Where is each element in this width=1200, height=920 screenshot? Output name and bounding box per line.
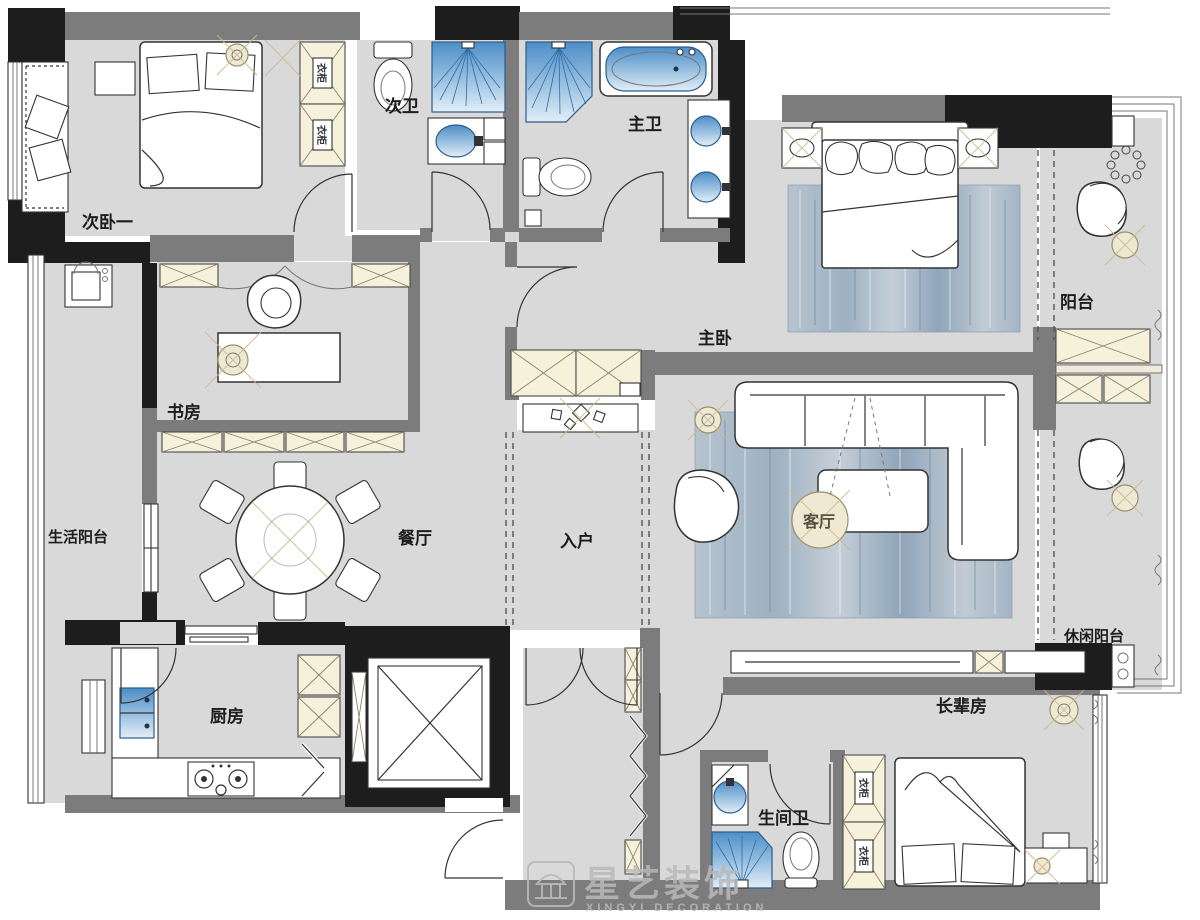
nightstand-master-left — [782, 128, 822, 168]
nightstand-master-right — [958, 128, 998, 168]
nightstand-bedroom2 — [95, 62, 135, 95]
study-chair — [248, 275, 301, 328]
bathtub — [600, 42, 712, 96]
bed-master — [812, 122, 968, 268]
wardrobe-label-4: 衣柜 — [857, 846, 870, 866]
accent-chair — [674, 470, 738, 542]
wardrobe-elder-room — [843, 755, 885, 889]
service-balcony-window — [28, 255, 44, 803]
room-label-leisure-balcony: 休闲阳台 — [1063, 627, 1124, 645]
room-label-master-bedroom: 主卧 — [698, 328, 732, 348]
dining-slider-window — [144, 504, 158, 592]
room-label-entry: 入户 — [560, 531, 594, 551]
room-label-balcony: 阳台 — [1060, 292, 1094, 312]
wardrobe-label-3: 衣柜 — [857, 778, 870, 798]
room-label-bath2: 次卫 — [385, 96, 419, 116]
floorplan-canvas: 次卧一 次卫 主卫 主卧 阳台 书房 生活阳台 餐厅 入户 客厅 休闲阳台 厨房… — [0, 0, 1200, 920]
room-label-elder-bath: 生间卫 — [758, 808, 809, 828]
leisure-chair — [1079, 439, 1124, 489]
toilet-elder-bath — [783, 832, 819, 888]
ceiling-light-elder — [1044, 690, 1084, 730]
tv-cabinet — [731, 651, 1085, 673]
leisure-utility-cabinet — [1112, 645, 1134, 687]
wardrobe-label-2: 衣柜 — [315, 125, 328, 145]
balcony-divider-cabinets — [1056, 329, 1162, 403]
vanity-sink-bath2 — [428, 118, 505, 164]
watermark-brand: 星艺装饰 — [584, 863, 744, 904]
balcony-chair — [1077, 182, 1126, 236]
elevator — [345, 626, 510, 807]
room-label-living: 客厅 — [803, 512, 835, 531]
shower-bath2 — [432, 42, 505, 112]
room-label-study: 书房 — [167, 402, 201, 422]
room-label-bedroom2: 次卧一 — [82, 212, 133, 232]
balcony-ac-unit — [1112, 116, 1134, 146]
toilet-master-bath — [523, 158, 591, 196]
floor-drain — [525, 210, 541, 226]
room-label-kitchen: 厨房 — [210, 706, 244, 726]
room-label-master-bath: 主卫 — [628, 114, 662, 134]
study-bottom-cabinets — [162, 432, 404, 452]
room-label-elder-room: 长辈房 — [936, 696, 987, 716]
vanity-sinks-master-bath — [688, 100, 731, 218]
study-desk — [205, 332, 340, 388]
elder-room-window — [1093, 695, 1108, 883]
vanity-sink-elder-bath — [712, 765, 748, 825]
bed-elder — [895, 758, 1025, 886]
room-label-service-balcony: 生活阳台 — [48, 528, 108, 546]
stove — [188, 762, 254, 796]
room-label-dining: 餐厅 — [398, 528, 432, 548]
kitchen-window — [82, 680, 105, 753]
watermark-subtitle: XINGYI DECORATION — [586, 902, 767, 914]
wardrobe-bedroom2 — [300, 42, 345, 166]
bay-window — [8, 62, 71, 212]
wardrobe-label-1: 衣柜 — [315, 63, 328, 83]
entry-cabinet — [511, 350, 641, 396]
entry-console — [523, 398, 638, 438]
washing-machine — [65, 262, 112, 307]
